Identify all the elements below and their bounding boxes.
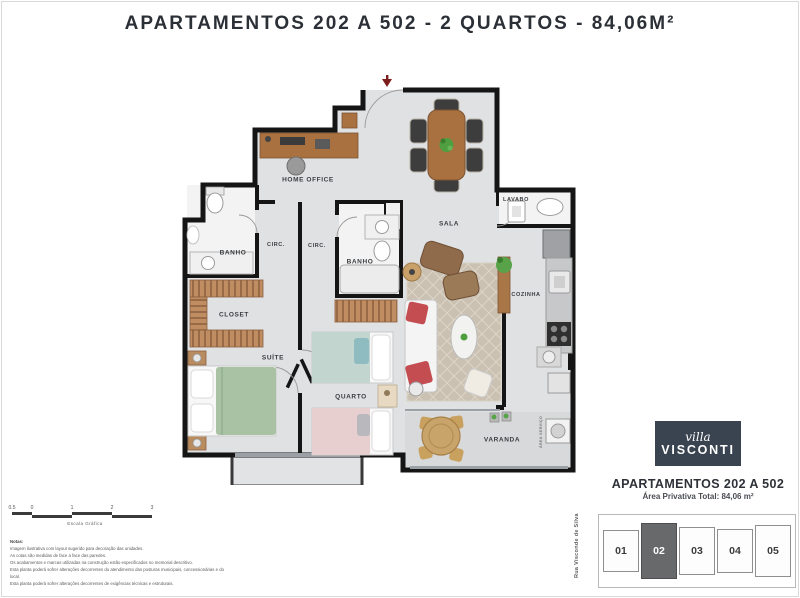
scale-tick: 0.5 bbox=[9, 505, 16, 511]
villa-visconti-logo: villa VISCONTI bbox=[655, 421, 741, 466]
scale-tick: 2 bbox=[111, 505, 114, 511]
unit-info-subtitle: Área Privativa Total: 84,06 m² bbox=[600, 492, 796, 501]
keyplan-unit-01: 01 bbox=[603, 530, 639, 572]
logo-script-text: villa bbox=[685, 431, 710, 443]
room-label-area-servico: ÁREA SERVIÇO bbox=[539, 416, 543, 448]
room-label-closet: CLOSET bbox=[219, 312, 249, 319]
room-label-suite: SUÍTE bbox=[262, 355, 284, 362]
room-label-circ-2: CIRC. bbox=[308, 243, 326, 249]
room-label-quarto: QUARTO bbox=[335, 394, 367, 401]
page-title: APARTAMENTOS 202 A 502 - 2 QUARTOS - 84,… bbox=[0, 13, 800, 35]
scale-bar-graphic bbox=[10, 512, 160, 518]
floor-plan: HOME OFFICE BANHO CIRC. CIRC. BANHO SALA… bbox=[160, 75, 600, 485]
floor-plan-svg bbox=[160, 75, 600, 485]
unit-info-title: APARTAMENTOS 202 A 502 bbox=[600, 477, 796, 491]
notes-block: Notas: Imagem ilustrativa com layout sug… bbox=[10, 538, 224, 587]
keyplan-unit-04: 04 bbox=[717, 529, 753, 573]
note-line: Esta planta poderá sofrer alterações dec… bbox=[10, 566, 224, 580]
suite-bed bbox=[188, 351, 276, 450]
room-label-cozinha: COZINHA bbox=[511, 292, 540, 298]
entry-arrow-icon bbox=[382, 75, 392, 87]
bedroom-ledge bbox=[232, 453, 362, 485]
scale-tick: 3 bbox=[151, 505, 154, 511]
keyplan-unit-02: 02 bbox=[641, 523, 677, 579]
room-label-sala: SALA bbox=[439, 221, 459, 228]
note-line: As cotas são medidas de face a face das … bbox=[10, 552, 224, 559]
room-label-banho-1: BANHO bbox=[220, 250, 247, 257]
key-plan-strip: 01 02 03 04 05 bbox=[602, 522, 792, 580]
scale-tick: 0 bbox=[31, 505, 34, 511]
room-label-varanda: VARANDA bbox=[484, 437, 520, 444]
street-label: Rua Visconde de Silva bbox=[574, 498, 586, 594]
logo-caps-text: VISCONTI bbox=[661, 443, 734, 457]
room-label-banho-2: BANHO bbox=[347, 259, 374, 266]
room-label-home-office: HOME OFFICE bbox=[282, 177, 334, 184]
note-line: Imagem ilustrativa com layout sugerido p… bbox=[10, 545, 224, 552]
scale-bar: 0.5 0 1 2 3 Escala Gráfica bbox=[10, 505, 160, 531]
scale-caption: Escala Gráfica bbox=[10, 521, 160, 526]
key-plan: 01 02 03 04 05 bbox=[598, 514, 796, 588]
room-label-lavabo: LAVABO bbox=[503, 197, 529, 203]
keyplan-unit-05: 05 bbox=[755, 525, 791, 577]
scale-ticks: 0.5 0 1 2 3 bbox=[10, 505, 160, 512]
note-line: Esta planta poderá sofrer alterações dec… bbox=[10, 580, 224, 587]
keyplan-unit-03: 03 bbox=[679, 527, 715, 575]
room-label-circ-1: CIRC. bbox=[267, 242, 285, 248]
notes-heading: Notas: bbox=[10, 538, 224, 545]
scale-tick: 1 bbox=[71, 505, 74, 511]
floorplan-page: { "title": "APARTAMENTOS 202 A 502 - 2 Q… bbox=[0, 0, 800, 598]
living-room-furniture bbox=[403, 239, 512, 401]
note-line: Os acabamentos e marcas utilizadas na co… bbox=[10, 559, 224, 566]
